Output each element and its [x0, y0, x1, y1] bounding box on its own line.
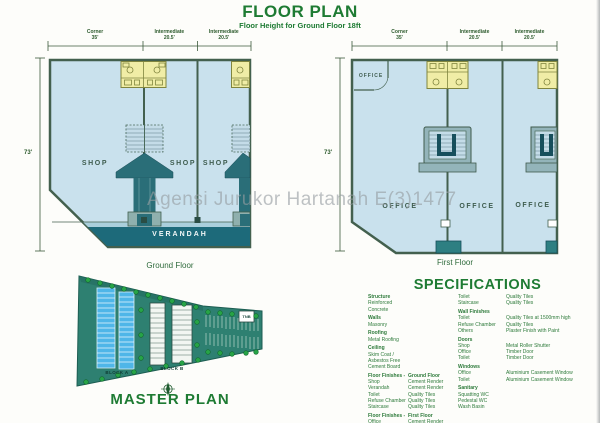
first-floor-staircase-2	[526, 127, 557, 172]
master-plan-title: MASTER PLAN	[80, 391, 260, 408]
agency-watermark: Agensi Jurukor Hartanah E(3)1477	[147, 189, 457, 211]
spec-value	[408, 300, 458, 313]
spec-row: Toilet Aluminium Casement Window	[458, 377, 598, 383]
room-label-office-3: OFFICE	[513, 202, 553, 209]
room-label-shop-1: SHOP	[75, 160, 115, 167]
dimension-segment: Intermediate 20.5'	[447, 29, 502, 42]
spec-key: Staircase	[458, 300, 506, 306]
spec-key: Reinforced Concrete	[368, 300, 408, 313]
spec-value: Timber Door	[506, 355, 598, 361]
spec-key: Wash Basin	[458, 404, 506, 410]
dimension-segment: Intermediate 20.5'	[197, 29, 251, 42]
dimension-value: 35'	[92, 35, 99, 41]
spec-row: Skim Coat / Asbestos Free	[368, 352, 458, 365]
spec-row: Wash Basin	[458, 404, 598, 410]
spec-key: Staircase	[368, 404, 408, 410]
spec-key: Toilet	[458, 355, 506, 361]
ground-floor-plan-shape	[35, 41, 251, 251]
specifications-right-column: Toilet Quality Tiles Staircase Quality T…	[458, 294, 598, 410]
spec-value: Aluminium Casement Window	[506, 377, 598, 383]
corner-office-label: OFFICE	[355, 73, 387, 79]
spec-value	[408, 364, 458, 370]
ground-floor-caption: Ground Floor	[95, 261, 245, 270]
dimension-segment: Intermediate 20.5'	[142, 29, 196, 42]
spec-value: Plaster Finish with Paint	[506, 328, 598, 334]
spec-key: Cement Board	[368, 364, 408, 370]
first-floor-top-dimensions: Corner 35' Intermediate 20.5' Intermedia…	[352, 29, 557, 45]
verandah-label: VERANDAH	[110, 231, 250, 238]
master-plan-shape	[77, 276, 262, 396]
spec-key: Others	[458, 328, 506, 334]
spec-value: Quality Tiles	[408, 404, 458, 410]
specifications-left-column: Structure Reinforced Concrete Walls Maso…	[368, 294, 458, 423]
floor-plan-document: FLOOR PLAN Floor Height for Ground Floor…	[0, 0, 600, 423]
spec-key: Skim Coat / Asbestos Free	[368, 352, 408, 365]
first-floor-caption: First Floor	[380, 258, 530, 267]
spec-row: Reinforced Concrete	[368, 300, 458, 313]
dimension-value: 20.5'	[164, 35, 175, 41]
spec-value	[408, 352, 458, 365]
spec-row: Office Cement Render	[368, 419, 458, 423]
first-floor-staircase-1	[419, 127, 476, 172]
spec-row: Staircase Quality Tiles	[368, 404, 458, 410]
dimension-segment: Corner 35'	[48, 29, 142, 42]
dimension-value: 35'	[396, 35, 403, 41]
spec-value	[408, 322, 458, 328]
dimension-segment: Corner 35'	[352, 29, 447, 42]
block-a-label: BLOCK A	[95, 370, 139, 375]
ground-floor-top-dimensions: Corner 35' Intermediate 20.5' Intermedia…	[48, 29, 251, 45]
room-label-office-2: OFFICE	[457, 203, 497, 210]
spec-row: Staircase Quality Tiles	[458, 300, 598, 306]
dimension-value: 20.5'	[469, 35, 480, 41]
spec-key: Toilet	[458, 377, 506, 383]
spec-row: Cement Board	[368, 364, 458, 370]
page-title: FLOOR PLAN	[0, 2, 600, 22]
ground-floor-side-dimension: 73'	[24, 150, 32, 156]
first-floor-side-dimension-line	[335, 58, 345, 251]
spec-row: Metal Roofing	[368, 337, 458, 343]
spec-value: Cement Render	[408, 419, 458, 423]
block-b-label: BLOCK B	[150, 366, 194, 371]
specifications-title: SPECIFICATIONS	[360, 277, 595, 293]
spec-value: Quality Tiles	[506, 300, 598, 306]
spec-value	[506, 404, 598, 410]
tnb-label: TNB	[239, 314, 254, 319]
room-label-shop-3: SHOP	[196, 160, 236, 167]
spec-value	[408, 337, 458, 343]
scan-page-edge	[596, 0, 600, 423]
spec-row: Masonry	[368, 322, 458, 328]
dimension-segment: Intermediate 20.5'	[502, 29, 557, 42]
spec-row: Others Plaster Finish with Paint	[458, 328, 598, 334]
ground-floor-side-dimension-line	[35, 58, 45, 251]
spec-row: Toilet Timber Door	[458, 355, 598, 361]
dimension-value: 20.5'	[218, 35, 229, 41]
dimension-value: 20.5'	[524, 35, 535, 41]
first-floor-side-dimension: 73'	[324, 150, 332, 156]
spec-key: Metal Roofing	[368, 337, 408, 343]
spec-key: Office	[368, 419, 408, 423]
spec-key: Masonry	[368, 322, 408, 328]
